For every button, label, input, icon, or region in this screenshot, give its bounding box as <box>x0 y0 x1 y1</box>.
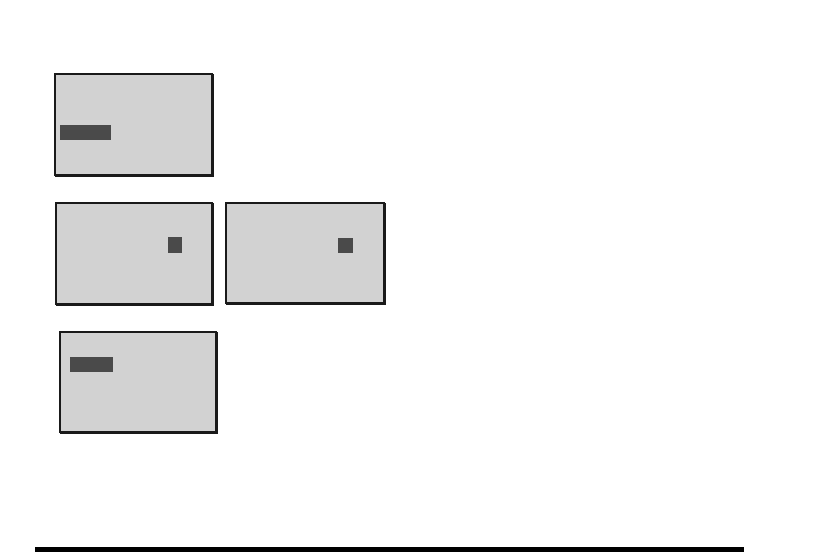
figure-placeholder-1 <box>54 73 213 176</box>
figure-placeholder-3 <box>225 202 385 304</box>
document-page <box>0 0 828 558</box>
figure-2-dark-square <box>168 237 182 253</box>
figure-placeholder-4 <box>59 331 217 433</box>
figure-4-dark-bar <box>70 357 113 372</box>
figure-placeholder-2 <box>55 202 213 305</box>
figure-1-dark-bar <box>60 125 111 140</box>
footer-rule <box>35 547 744 552</box>
figure-3-dark-square <box>338 238 353 253</box>
